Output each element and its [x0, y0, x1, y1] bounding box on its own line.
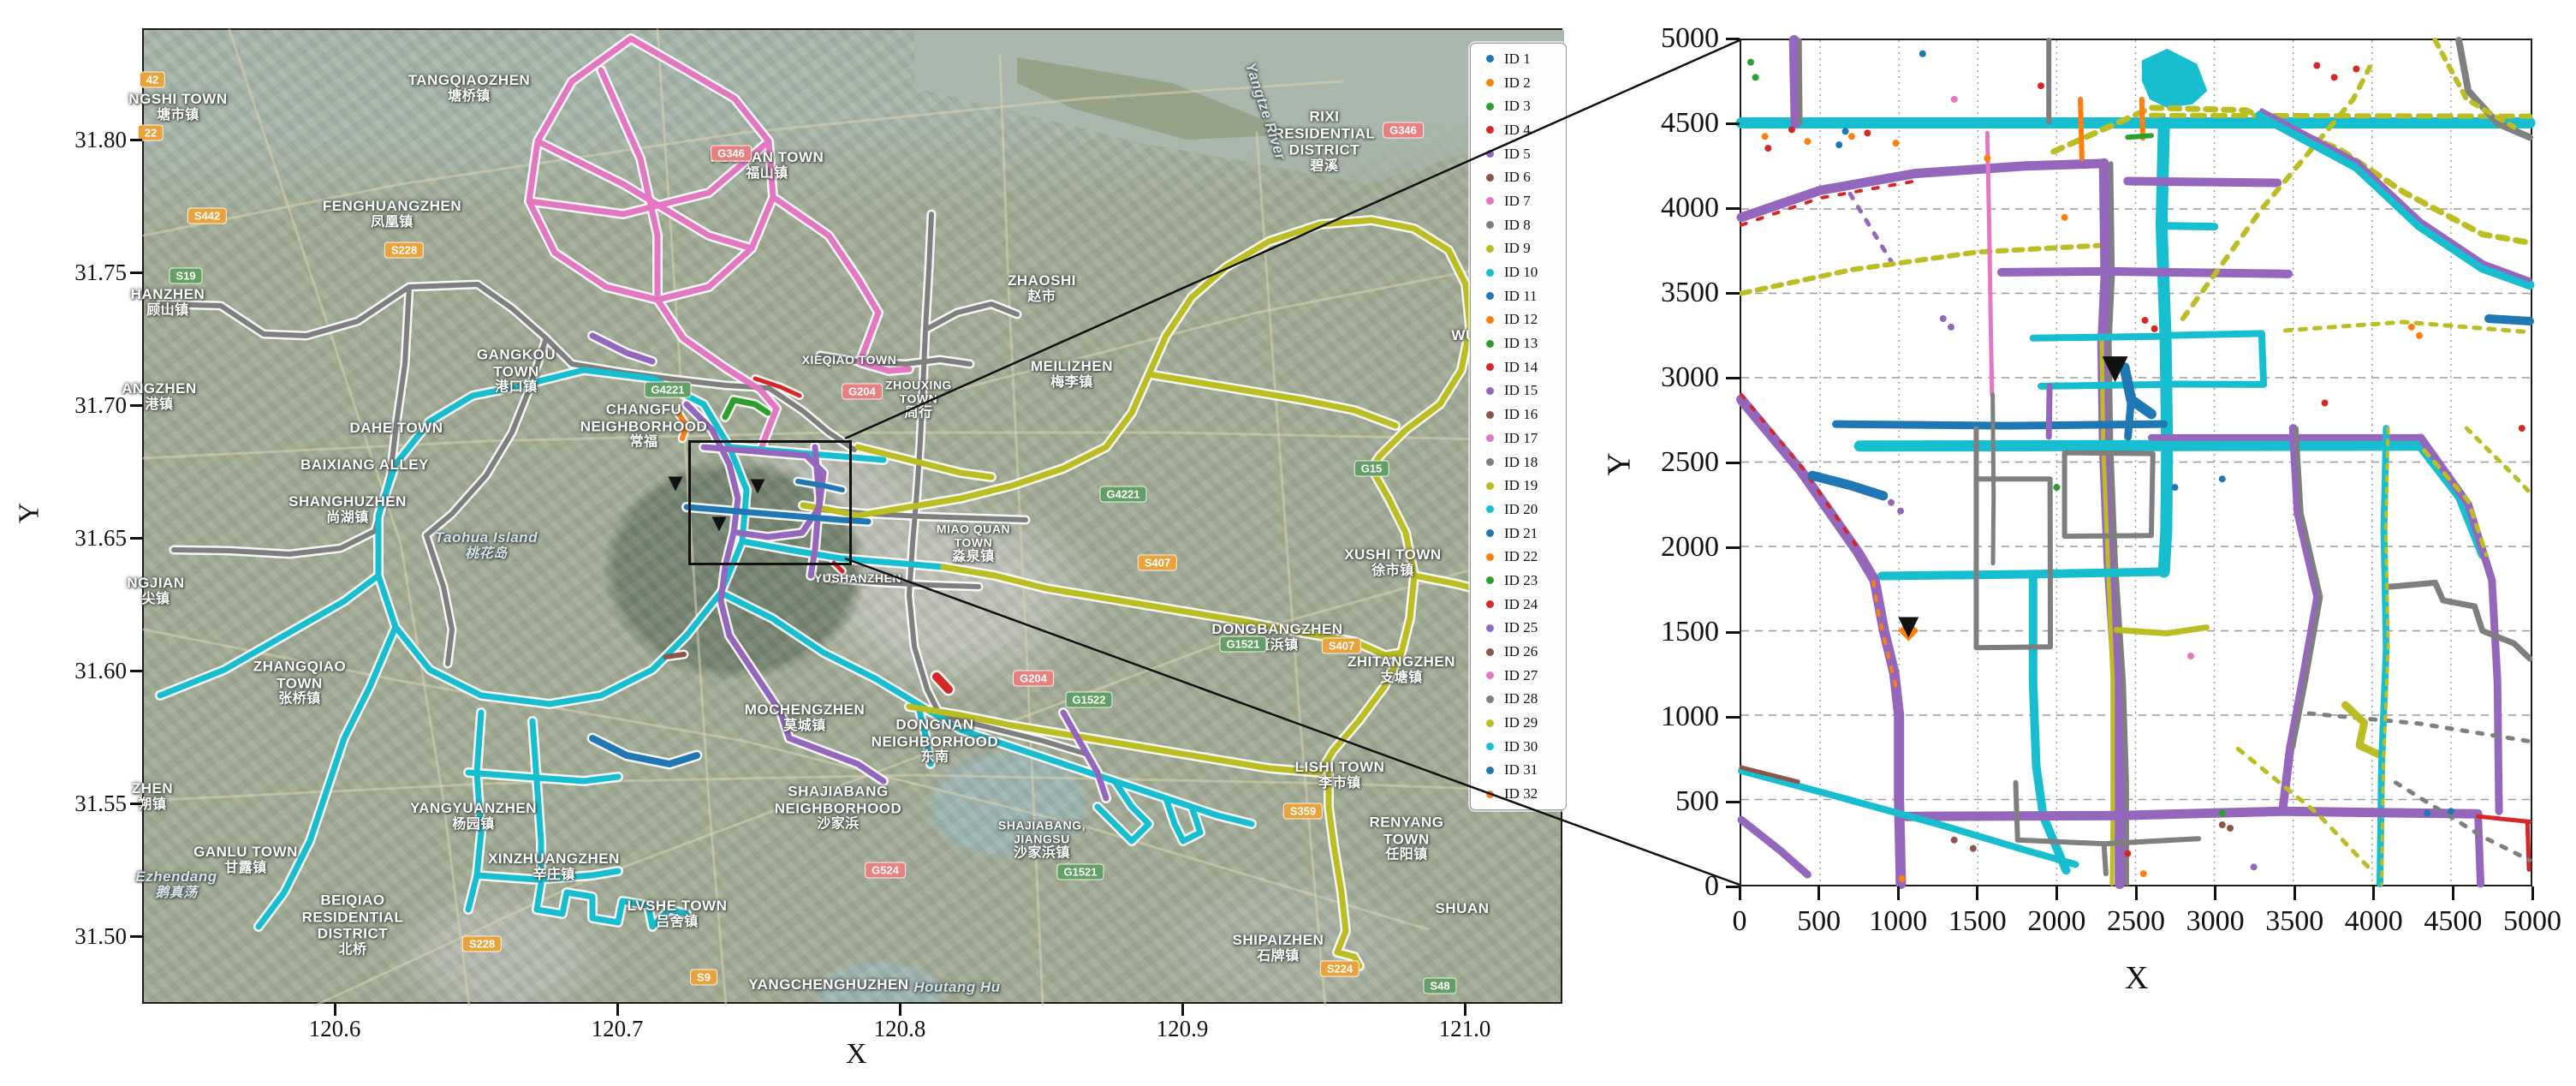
legend-label: ID 26 [1504, 643, 1538, 660]
legend-label: ID 18 [1504, 454, 1538, 471]
legend-color-dot [1486, 767, 1494, 774]
scatter-dot [2151, 325, 2158, 332]
trajectory-path [2162, 123, 2167, 572]
map-place-label: Taohua Island桃花岛 [435, 529, 538, 562]
map-place-label: LVSHE TOWN吕舍镇 [628, 898, 728, 930]
scatter-dot [1762, 133, 1769, 140]
tick-label: 3000 [1661, 361, 1719, 394]
map-place-label: MEILIZHEN梅李镇 [1031, 358, 1113, 391]
tick-mark [130, 670, 142, 672]
legend-label: ID 5 [1504, 146, 1531, 163]
legend-label: ID 6 [1504, 169, 1531, 186]
left-y-axis-label: Y [13, 503, 45, 524]
map-place-label: SHAJIABANGNEIGHBORHOOD沙家浜 [775, 783, 902, 832]
scatter-dot [1848, 133, 1855, 140]
trajectory-path [1800, 40, 1800, 123]
tick-mark [334, 1004, 336, 1016]
tick-mark [1464, 1004, 1466, 1016]
trajectory-path [2183, 68, 2370, 319]
road-shield-badge: S359 [1283, 803, 1323, 820]
right-x-axis-label: X [2125, 959, 2148, 997]
legend-item: ID 23 [1471, 570, 1566, 591]
legend-label: ID 12 [1504, 311, 1538, 328]
trajectory-path [2345, 705, 2381, 755]
map-place-label: ZHEN朔镇 [132, 780, 173, 813]
tick-mark [2293, 886, 2296, 900]
legend-label: ID 32 [1504, 785, 1538, 803]
trajectory-path [2527, 822, 2529, 870]
legend-item: ID 27 [1471, 665, 1566, 686]
map-place-label: YUSHANZHEN [814, 571, 901, 585]
road-shield-badge: S48 [1423, 978, 1456, 994]
trajectory-path [773, 197, 909, 371]
tick-label: 4000 [2345, 905, 2403, 938]
map-place-label: XIEQIAO TOWN [802, 353, 897, 367]
tick-mark [1181, 1004, 1184, 1016]
road-shield-badge: G524 [865, 862, 906, 879]
legend-color-dot [1486, 316, 1494, 324]
tick-mark [130, 139, 142, 141]
trajectory-path [2128, 400, 2132, 437]
legend-item: ID 10 [1471, 262, 1566, 283]
tick-mark [1726, 122, 1740, 125]
legend-label: ID 7 [1504, 193, 1531, 210]
legend-label: ID 10 [1504, 264, 1538, 281]
scatter-dot [1940, 315, 1947, 322]
legend-item: ID 30 [1471, 737, 1566, 757]
map-place-label: RENYANGTOWN任阳镇 [1370, 814, 1444, 862]
tick-label: 4500 [2424, 905, 2482, 938]
scatter-dot [2061, 214, 2068, 221]
trajectory-path [665, 654, 684, 657]
tick-label: 120.6 [309, 1016, 361, 1042]
legend-item: ID 26 [1471, 641, 1566, 662]
legend-label: ID 16 [1504, 406, 1538, 423]
map-place-label: ZHITANGZHEN支塘镇 [1347, 653, 1455, 686]
map-place-label: FENGHUANGZHEN凤凰镇 [323, 198, 461, 230]
legend-item: ID 3 [1471, 96, 1566, 116]
legend-item: ID 6 [1471, 167, 1566, 188]
legend-item: ID 7 [1471, 191, 1566, 212]
legend-item: ID 31 [1471, 760, 1566, 780]
legend-item: ID 32 [1471, 784, 1566, 804]
left-x-axis-label: X [846, 1038, 867, 1071]
tick-mark [2452, 886, 2454, 900]
black-triangle-marker [669, 477, 683, 492]
scatter-dot [1864, 129, 1871, 136]
scatter-dot [1842, 128, 1849, 134]
trajectory-path [773, 197, 909, 371]
legend-color-dot [1486, 624, 1494, 632]
legend-color-dot [1486, 197, 1494, 205]
legend-item: ID 13 [1471, 333, 1566, 354]
map-place-label: ZHAOSHI赵市 [1008, 272, 1076, 305]
dense-point-blob [2142, 49, 2207, 108]
map-place-label: DONGNANNEIGHBORHOOD东南 [872, 716, 999, 765]
road-shield-badge: G1521 [1219, 636, 1266, 653]
tick-label: 4500 [1661, 107, 1719, 140]
tick-label: 31.55 [74, 791, 127, 817]
tick-mark [1726, 292, 1740, 295]
map-place-label: YANGYUANZHEN杨园镇 [410, 800, 537, 832]
map-place-label: SHAJIABANG,JIANGSU沙家浜镇 [998, 819, 1086, 862]
tick-mark [1726, 377, 1740, 379]
road-shield-badge: G1522 [1065, 692, 1112, 708]
road-shield-badge: G346 [1383, 122, 1424, 139]
trajectory-path [1836, 424, 2164, 426]
scatter-dot [2038, 82, 2044, 89]
legend-item: ID 22 [1471, 546, 1566, 567]
scatter-dot [2219, 821, 2226, 828]
map-place-label: HANZHEN顾山镇 [131, 286, 205, 319]
tick-mark [2372, 886, 2375, 900]
road-shield-badge: G204 [842, 384, 883, 400]
scatter-dot [2353, 65, 2359, 72]
tick-mark [130, 404, 142, 407]
left-map-plot: NGSHI TOWN塘市镇TANGQIAOZHEN塘桥镇FENGHUANGZHE… [142, 28, 1562, 1004]
map-place-label: ZHANGQIAOTOWN张桥镇 [253, 658, 346, 707]
map-place-label: GANGKOUTOWN港口镇 [477, 346, 556, 395]
trajectory-path [2111, 271, 2288, 274]
tick-label: 500 [1797, 905, 1841, 938]
road-shield-badge: G4221 [644, 382, 691, 398]
legend-label: ID 19 [1504, 477, 1538, 494]
legend-color-dot [1486, 791, 1494, 798]
legend-item: ID 1 [1471, 49, 1566, 69]
trajectory-path [1993, 395, 1994, 564]
legend-color-dot [1486, 719, 1494, 727]
scatter-dot [2416, 332, 2423, 339]
trajectory-path [1741, 820, 1807, 874]
tick-mark [1726, 801, 1740, 803]
legend-label: ID 2 [1504, 75, 1531, 92]
tick-label: 31.80 [74, 127, 127, 153]
legend-label: ID 21 [1504, 525, 1538, 542]
scatter-dot [1788, 126, 1795, 133]
legend-label: ID 1 [1504, 51, 1531, 68]
scatter-dot [1919, 51, 1926, 57]
tick-label: 31.50 [74, 923, 127, 950]
scatter-dot [2448, 808, 2454, 814]
legend-item: ID 20 [1471, 499, 1566, 520]
scatter-dot [2322, 400, 2329, 407]
scatter-dot [1747, 59, 1754, 66]
legend-item: ID 15 [1471, 380, 1566, 401]
tick-mark [1817, 886, 1820, 900]
map-place-label: LISHI TOWN李市镇 [1295, 759, 1385, 791]
scatter-dot [2519, 425, 2525, 432]
trajectory-path [2127, 135, 2151, 137]
tick-mark [130, 803, 142, 805]
legend-label: ID 13 [1504, 335, 1538, 352]
scatter-dot [1899, 875, 1906, 882]
zoom-scatter-layer [1741, 40, 2530, 884]
trajectory-path [2478, 814, 2481, 884]
tick-mark [1976, 886, 1978, 900]
legend-item: ID 16 [1471, 404, 1566, 425]
trajectory-path [1741, 400, 1901, 884]
road-shield-badge: S442 [187, 208, 227, 224]
scatter-dot [2424, 809, 2430, 816]
tick-label: 4000 [1661, 192, 1719, 224]
road-shield-badge: S407 [1322, 638, 1361, 654]
tick-label: 1000 [1869, 905, 1927, 938]
black-triangle-marker [1898, 618, 1919, 638]
trajectory-path [2142, 99, 2143, 138]
trajectory-path [1794, 40, 1796, 123]
tick-label: 3000 [2186, 905, 2245, 938]
legend-item: ID 4 [1471, 120, 1566, 140]
legend-label: ID 4 [1504, 122, 1531, 139]
tick-mark [130, 271, 142, 274]
zoom-inset-rectangle [688, 440, 852, 565]
tick-mark [2531, 886, 2534, 900]
map-place-label: Ezhendang鹅真荡 [135, 868, 217, 901]
scatter-dot [1888, 499, 1895, 506]
trajectory-path [1850, 194, 1891, 261]
legend-color-dot [1486, 150, 1494, 158]
scatter-dot [2187, 653, 2194, 659]
legend-item: ID 5 [1471, 144, 1566, 164]
legend-item: ID 8 [1471, 215, 1566, 236]
tick-label: 1500 [1661, 616, 1719, 648]
legend-color-dot [1486, 269, 1494, 277]
legend-label: ID 3 [1504, 98, 1531, 115]
tick-label: 0 [1704, 870, 1719, 903]
figure-canvas: { "figure": { "left_plot": {"xlabel":"X"… [0, 0, 2576, 1086]
scatter-dot [2053, 484, 2060, 491]
trajectory-path [2466, 428, 2530, 492]
tick-label: 5000 [1661, 22, 1719, 55]
trajectory-path [1976, 428, 2050, 647]
scatter-dot [2142, 317, 2149, 324]
legend-item: ID 18 [1471, 452, 1566, 473]
legend-color-dot [1486, 387, 1494, 395]
tick-mark [2214, 886, 2216, 900]
tick-label: 2500 [1661, 446, 1719, 479]
legend-color-dot [1486, 174, 1494, 182]
map-place-label: RIXIRESIDENTIALDISTRICT碧溪 [1274, 108, 1376, 174]
scatter-dot [2140, 870, 2147, 877]
legend-label: ID 30 [1504, 738, 1538, 755]
legend-label: ID 14 [1504, 359, 1538, 376]
scatter-dot [2227, 825, 2234, 832]
tick-mark [1739, 886, 1741, 900]
trajectory-path [2049, 386, 2049, 437]
legend-color-dot [1486, 743, 1494, 750]
tick-label: 120.8 [874, 1016, 926, 1042]
tick-label: 2000 [2027, 905, 2085, 938]
legend-color-dot [1486, 695, 1494, 703]
legend-label: ID 20 [1504, 501, 1538, 518]
tick-label: 3500 [1661, 277, 1719, 309]
trajectory-path [2388, 582, 2530, 659]
legend-item: ID 9 [1471, 238, 1566, 259]
legend-item: ID 29 [1471, 713, 1566, 733]
trajectory-path [2033, 337, 2159, 338]
trajectory-path [2285, 322, 2530, 332]
map-place-label: BAIXIANG ALLEY [300, 456, 429, 474]
legend-color-dot [1486, 505, 1494, 513]
legend-color-dot [1486, 529, 1494, 537]
road-shield-badge: S9 [690, 970, 717, 986]
map-place-label: NGJIAN尖镇 [127, 575, 184, 607]
legend-color-dot [1486, 221, 1494, 229]
road-shield-badge: G346 [711, 146, 752, 162]
scatter-dot [1835, 141, 1842, 148]
legend-color-dot [1486, 434, 1494, 442]
legend-color-dot [1486, 458, 1494, 466]
road-shield-badge: S19 [169, 268, 202, 284]
legend-label: ID 31 [1504, 761, 1538, 779]
road-shield-badge: S228 [384, 242, 424, 259]
map-place-label: ANGZHEN港镇 [122, 380, 197, 413]
legend-label: ID 22 [1504, 548, 1538, 565]
scatter-dot [1970, 845, 1977, 852]
tick-label: 120.7 [592, 1016, 644, 1042]
legend-label: ID 15 [1504, 382, 1538, 399]
tick-label: 5000 [2503, 905, 2561, 938]
road-shield-badge: S224 [1320, 961, 1359, 977]
scatter-dot [2313, 63, 2320, 69]
tick-mark [130, 935, 142, 938]
scatter-dot [2408, 324, 2415, 331]
trajectory-path [2002, 271, 2104, 272]
trajectory-id-legend: ID 1ID 2ID 3ID 4ID 5ID 6ID 7ID 8ID 9ID 1… [1470, 43, 1567, 810]
legend-color-dot [1486, 292, 1494, 300]
scatter-dot [1752, 74, 1759, 81]
tick-label: 121.0 [1439, 1016, 1491, 1042]
legend-color-dot [1486, 340, 1494, 348]
legend-item: ID 25 [1471, 618, 1566, 638]
right-zoom-plot [1740, 39, 2532, 886]
legend-item: ID 17 [1471, 428, 1566, 449]
legend-color-dot [1486, 553, 1494, 561]
tick-label: 1500 [1948, 905, 2007, 938]
tick-mark [1726, 716, 1740, 719]
road-shield-badge: S228 [462, 936, 502, 952]
map-place-label: MIAO QUANTOWN淼泉镇 [937, 522, 1010, 566]
trajectory-path [1907, 811, 2478, 816]
legend-color-dot [1486, 55, 1494, 63]
map-place-label: YANGCHENGHUZHEN [748, 976, 908, 994]
legend-color-dot [1486, 411, 1494, 419]
legend-color-dot [1486, 363, 1494, 371]
legend-item: ID 2 [1471, 73, 1566, 93]
legend-color-dot [1486, 79, 1494, 87]
trajectory-path [2080, 99, 2082, 158]
scatter-dot [1951, 837, 1958, 844]
legend-color-dot [1486, 245, 1494, 253]
scatter-dot [1948, 324, 1954, 331]
tick-label: 1000 [1661, 701, 1719, 733]
map-place-label: NGSHI TOWN塘市镇 [128, 91, 227, 123]
scatter-dot [2251, 863, 2258, 870]
map-place-label: ZHOUXINGTOWN周行 [885, 379, 952, 422]
legend-item: ID 21 [1471, 523, 1566, 544]
tick-mark [2135, 886, 2138, 900]
legend-color-dot [1486, 103, 1494, 110]
trajectory-path [592, 336, 652, 361]
road-shield-badge: 42 [140, 72, 165, 88]
legend-label: ID 25 [1504, 619, 1538, 636]
tick-mark [1726, 631, 1740, 634]
tick-label: 3500 [2265, 905, 2323, 938]
road-shield-badge: G204 [1013, 671, 1054, 687]
scatter-dot [1893, 140, 1900, 146]
road-shield-badge: G1521 [1056, 864, 1104, 880]
trajectory-path [2489, 319, 2530, 321]
legend-item: ID 19 [1471, 475, 1566, 496]
legend-item: ID 24 [1471, 594, 1566, 615]
trajectory-path [2165, 226, 2214, 227]
legend-label: ID 28 [1504, 690, 1538, 707]
legend-color-dot [1486, 576, 1494, 584]
tick-label: 31.65 [74, 525, 127, 552]
legend-label: ID 23 [1504, 572, 1538, 589]
trajectory-path [1257, 133, 1325, 1005]
road-shield-badge: G15 [1354, 461, 1389, 477]
scatter-dot [2331, 74, 2338, 81]
legend-item: ID 11 [1471, 286, 1566, 307]
legend-label: ID 9 [1504, 240, 1531, 257]
scatter-dot [1764, 145, 1771, 152]
map-place-label: TANGQIAOZHEN塘桥镇 [408, 72, 531, 104]
tick-mark [1897, 886, 1900, 900]
scatter-dot [2172, 484, 2179, 491]
tick-label: 2000 [1661, 531, 1719, 564]
map-place-label: XUSHI TOWN徐市镇 [1344, 546, 1441, 579]
tick-mark [2055, 886, 2058, 900]
trajectory-path [1882, 572, 2164, 576]
legend-item: ID 12 [1471, 309, 1566, 330]
tick-label: 2500 [2107, 905, 2165, 938]
legend-color-dot [1486, 600, 1494, 608]
trajectory-path [2260, 116, 2530, 285]
tick-mark [1726, 38, 1740, 40]
tick-label: 31.75 [74, 260, 127, 286]
map-place-label: SHIPAIZHEN石牌镇 [1233, 932, 1324, 964]
map-place-label: XINZHUANGZHEN辛庄镇 [488, 850, 620, 883]
legend-color-dot [1486, 671, 1494, 679]
tick-mark [130, 537, 142, 540]
map-place-label: DAHE TOWN [349, 420, 443, 437]
map-place-label: SHUAN [1436, 900, 1490, 917]
trajectory-path [2421, 438, 2499, 811]
trajectory-path [2127, 181, 2277, 182]
legend-label: ID 24 [1504, 596, 1538, 613]
trajectory-path [1812, 475, 1883, 496]
legend-item: ID 14 [1471, 357, 1566, 378]
trajectory-path [2116, 628, 2206, 634]
tick-mark [1726, 462, 1740, 464]
map-place-label: SHANGHUZHEN尚湖镇 [289, 493, 407, 526]
legend-item: ID 28 [1471, 689, 1566, 709]
legend-label: ID 8 [1504, 217, 1531, 234]
tick-label: 31.70 [74, 392, 127, 419]
legend-color-dot [1486, 648, 1494, 656]
scatter-dot [1804, 138, 1811, 145]
road-shield-badge: S407 [1138, 555, 1177, 571]
legend-label: ID 27 [1504, 667, 1538, 684]
right-y-axis-label: Y [1601, 452, 1639, 475]
legend-label: ID 17 [1504, 430, 1538, 447]
trajectory-path [1063, 713, 1106, 798]
legend-color-dot [1486, 482, 1494, 490]
map-place-label: Houtang Hu [913, 979, 1000, 996]
scatter-dot [1897, 508, 1904, 515]
trajectory-path [2478, 816, 2530, 821]
